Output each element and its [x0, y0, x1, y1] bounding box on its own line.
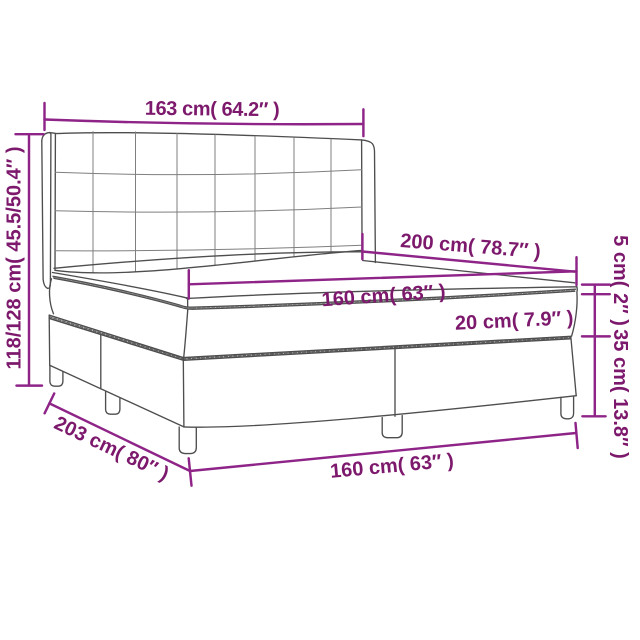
svg-text:35 cm( 13.8″ ): 35 cm( 13.8″ ) [609, 329, 631, 459]
svg-text:118/128 cm( 45.5/50.4″ ): 118/128 cm( 45.5/50.4″ ) [4, 146, 26, 369]
svg-text:5 cm( 2″ ): 5 cm( 2″ ) [609, 235, 631, 326]
svg-text:163 cm( 64.2″ ): 163 cm( 64.2″ ) [145, 98, 280, 121]
